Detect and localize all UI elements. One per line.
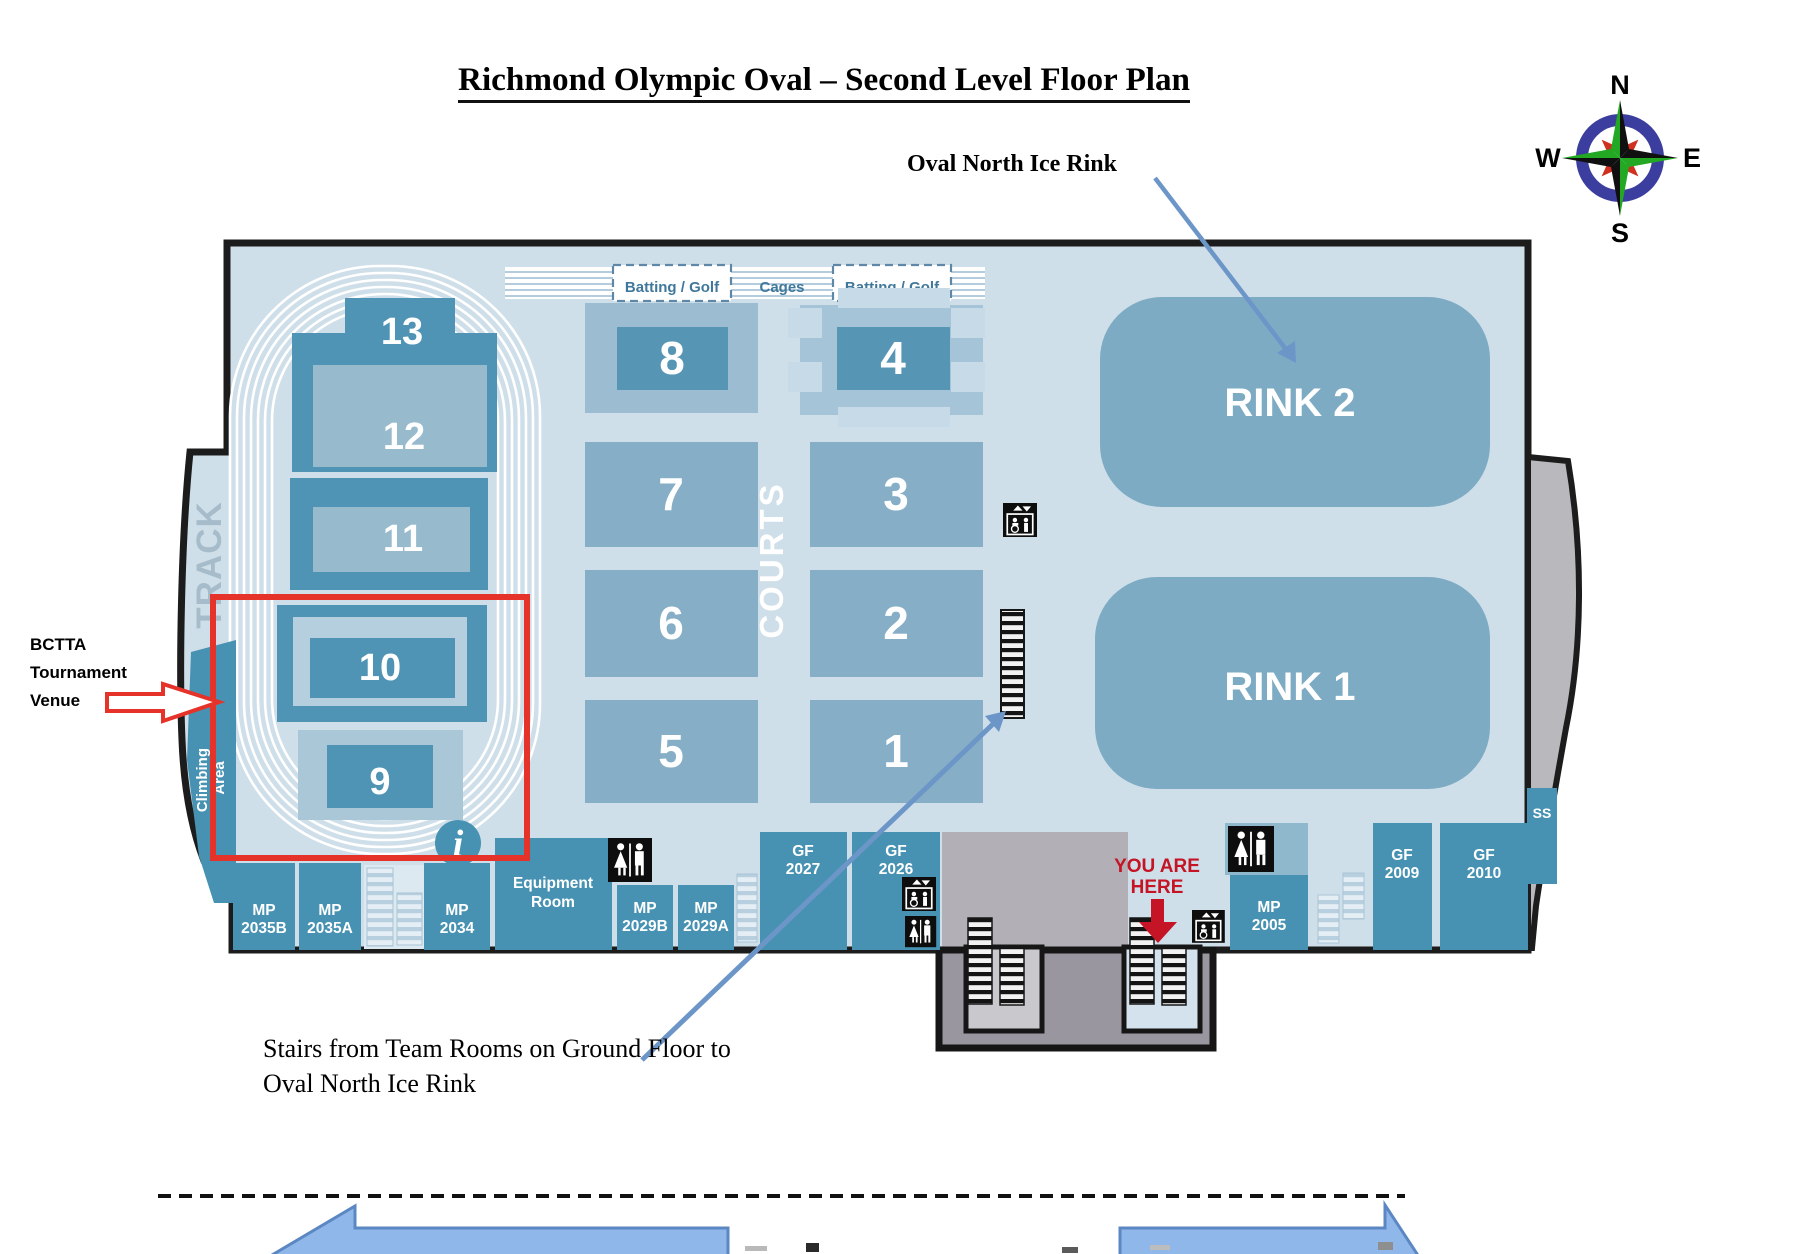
compass-e-black xyxy=(1620,149,1678,158)
floor-plan-figure: Richmond Olympic Oval – Second Level Flo… xyxy=(0,0,1796,1254)
court-4-label: 4 xyxy=(880,332,906,384)
bctta-line1: BCTTA xyxy=(30,635,86,654)
restroom-icon-2 xyxy=(905,916,936,947)
stairs-note: Stairs from Team Rooms on Ground Floor t… xyxy=(263,1034,737,1098)
court-1-label: 1 xyxy=(883,725,909,777)
court-12-label: 12 xyxy=(383,416,425,458)
bctta-line2: Tournament xyxy=(30,663,127,682)
court-13-label: 13 xyxy=(381,311,423,353)
light-stairs-icon-2 xyxy=(737,874,757,942)
compass-s-label: S xyxy=(1611,218,1629,248)
batting-golf-left-label: Batting / Golf xyxy=(625,279,720,296)
court-11-label: 11 xyxy=(383,518,423,560)
ss-room xyxy=(1527,788,1557,884)
rink-1-label: RINK 1 xyxy=(1224,665,1355,709)
court-5-label: 5 xyxy=(658,725,684,777)
compass-w-green xyxy=(1562,149,1620,158)
compass-s-black xyxy=(1611,158,1620,216)
compass-rose-icon: N S W E xyxy=(1535,70,1701,248)
oval-north-label: Oval North Ice Rink xyxy=(907,151,1118,177)
track-label: TRACK xyxy=(190,501,229,628)
left-block-arrow xyxy=(250,1206,728,1254)
page-title: Richmond Olympic Oval – Second Level Flo… xyxy=(458,62,1190,98)
court-2-label: 2 xyxy=(883,597,909,649)
restroom-icon-3 xyxy=(1228,826,1274,872)
room-gf2010 xyxy=(1440,823,1528,950)
restroom-icon-1 xyxy=(608,838,652,882)
compass-n-black xyxy=(1620,100,1629,158)
rink-2-label: RINK 2 xyxy=(1224,381,1355,425)
floor-plan-page: Richmond Olympic Oval – Second Level Flo… xyxy=(0,0,1796,1254)
compass-n-label: N xyxy=(1610,70,1630,100)
elevator-icon xyxy=(1003,503,1037,537)
you-are-here-arrow-shaft xyxy=(1151,899,1164,923)
cages-label: Cages xyxy=(759,279,804,296)
elevator-icon-3 xyxy=(1192,910,1225,943)
you-are-here-line1: YOU ARE xyxy=(1114,856,1200,877)
compass-w-black xyxy=(1562,158,1620,167)
court-8-label: 8 xyxy=(659,332,685,384)
compass-s-green xyxy=(1620,158,1629,216)
court-6-label: 6 xyxy=(658,597,684,649)
compass-n-green xyxy=(1611,100,1620,158)
bctta-line3: Venue xyxy=(30,691,80,710)
court-3-label: 3 xyxy=(883,468,909,520)
court-10-label: 10 xyxy=(359,647,401,689)
ss-room-label: SS xyxy=(1533,805,1552,821)
stairs-icon xyxy=(1001,610,1024,718)
you-are-here-line2: HERE xyxy=(1131,877,1184,898)
courts-label: COURTS xyxy=(753,481,790,638)
compass-e-green xyxy=(1620,158,1678,167)
room-gf2009 xyxy=(1373,823,1432,950)
court-9-label: 9 xyxy=(369,761,390,803)
court-7-label: 7 xyxy=(658,468,684,520)
elevator-icon-2 xyxy=(902,877,936,911)
title-underline xyxy=(458,100,1190,103)
light-stairs-icon-1 xyxy=(364,865,426,949)
compass-e-label: E xyxy=(1683,143,1701,173)
compass-w-label: W xyxy=(1535,143,1561,173)
